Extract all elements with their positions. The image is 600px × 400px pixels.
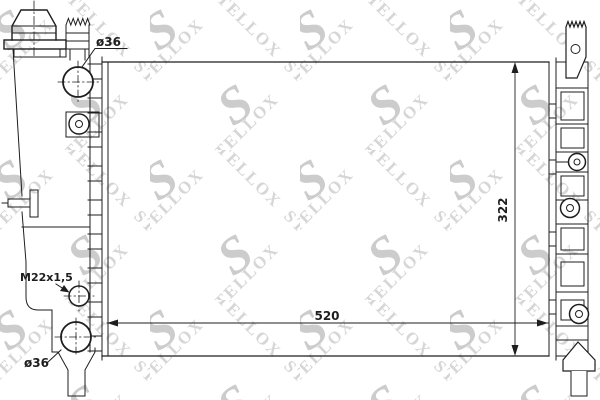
catalog-drawing-page: STELLOX STELLOX STELLOX STELLOX S S [0,0,600,400]
tank-boss [561,199,580,218]
dim-core-width-value: 520 [314,309,339,323]
label-top-port-diameter: ø36 [96,35,121,49]
tank-boss [570,305,589,324]
radiator-technical-drawing: STELLOX STELLOX STELLOX STELLOX S S [0,0,600,400]
label-bottom-port-diameter: ø36 [24,356,49,370]
dim-core-height-value: 322 [496,197,510,222]
label-drain-plug-thread: M22x1,5 [20,271,73,284]
